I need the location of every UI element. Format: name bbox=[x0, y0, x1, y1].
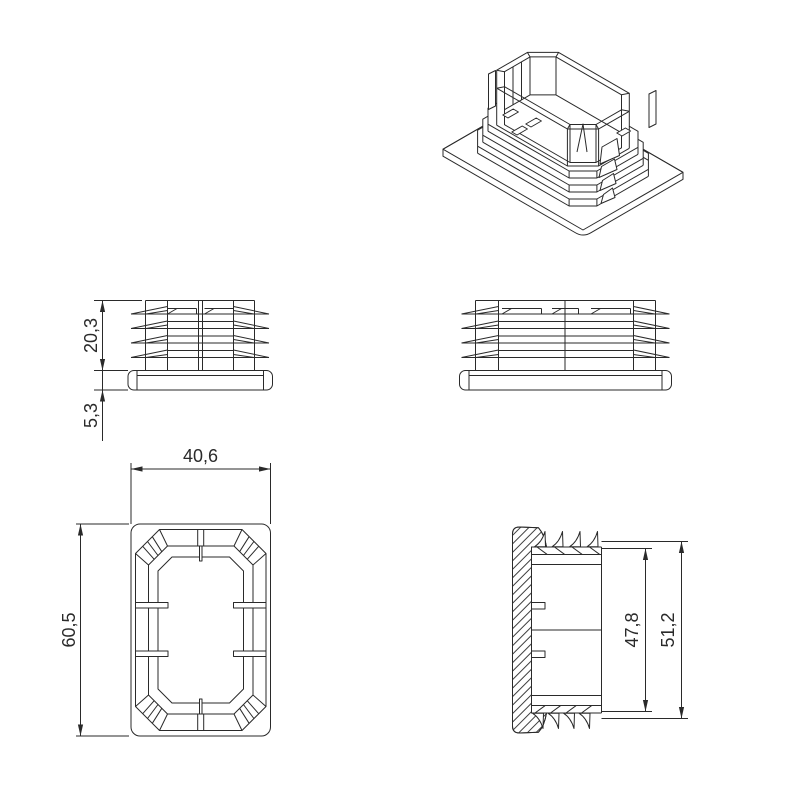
section-tab bbox=[532, 603, 546, 610]
dimension-length: 60,5 bbox=[59, 524, 129, 736]
section-teeth-top-roots bbox=[537, 547, 600, 554]
sv1-flange bbox=[128, 371, 273, 391]
arrowhead-down bbox=[78, 725, 83, 737]
arrowhead-left bbox=[131, 466, 143, 471]
plan-rib-right bbox=[234, 603, 267, 609]
sv1-slots bbox=[168, 309, 234, 315]
drawing-canvas: 20,3 5,3 40,6 bbox=[0, 0, 800, 800]
plan-wall-ribs bbox=[136, 530, 267, 731]
sv1-fin-blades bbox=[131, 314, 269, 358]
arrowhead-up bbox=[643, 549, 648, 561]
dimension-insert-depth: 47,8 bbox=[602, 549, 653, 712]
dimension-overall-depth: 51,2 bbox=[602, 542, 689, 719]
side-view-length bbox=[460, 301, 672, 391]
plan-view bbox=[131, 524, 271, 736]
plan-rib-bottom-stem bbox=[200, 699, 203, 714]
section-view bbox=[513, 527, 602, 733]
section-teeth-bottom-roots bbox=[535, 706, 592, 713]
dim-ext-lines bbox=[76, 524, 129, 736]
dimension-label: 5,3 bbox=[81, 403, 101, 428]
technical-drawing-sheet: 20,3 5,3 40,6 bbox=[0, 0, 800, 800]
plan-rib-bottom bbox=[198, 714, 204, 731]
plan-rib-left bbox=[136, 651, 169, 657]
dimension-label: 47,8 bbox=[622, 612, 642, 647]
side-view-width bbox=[128, 301, 273, 391]
arrowhead-up bbox=[100, 390, 105, 402]
iso-corner-post-right bbox=[649, 91, 656, 128]
plan-rib-top-stem bbox=[200, 546, 203, 561]
arrowhead-up bbox=[679, 542, 684, 554]
dimension-width: 40,6 bbox=[131, 446, 271, 524]
section-body-lines bbox=[532, 547, 602, 713]
iso-corner-post-left bbox=[489, 71, 496, 110]
dimension-label: 20,3 bbox=[81, 318, 101, 353]
dimension-label: 51,2 bbox=[658, 612, 678, 647]
dim-ext-lines bbox=[131, 463, 271, 524]
arrowhead-down bbox=[679, 707, 684, 719]
arrowhead-down bbox=[643, 700, 648, 712]
dimension-label: 40,6 bbox=[183, 446, 218, 466]
dimension-label: 60,5 bbox=[59, 612, 79, 647]
sv2-flange bbox=[460, 371, 672, 391]
plan-rib-top bbox=[198, 530, 204, 547]
section-teeth-top bbox=[535, 532, 599, 547]
arrowhead-up bbox=[78, 524, 83, 536]
arrowhead-down bbox=[100, 359, 105, 371]
section-tab bbox=[532, 651, 546, 658]
sv1-flange-details bbox=[137, 371, 264, 391]
isometric-view bbox=[443, 52, 683, 235]
plan-rib-left bbox=[136, 603, 169, 609]
sv2-flange-details bbox=[469, 371, 662, 391]
plan-rib-right bbox=[234, 651, 267, 657]
plan-octagon-middle bbox=[149, 546, 254, 714]
plan-octagon-inner bbox=[158, 557, 244, 703]
arrowhead-right bbox=[259, 466, 271, 471]
arrowhead-up bbox=[100, 301, 105, 313]
sv2-slots bbox=[502, 309, 631, 315]
